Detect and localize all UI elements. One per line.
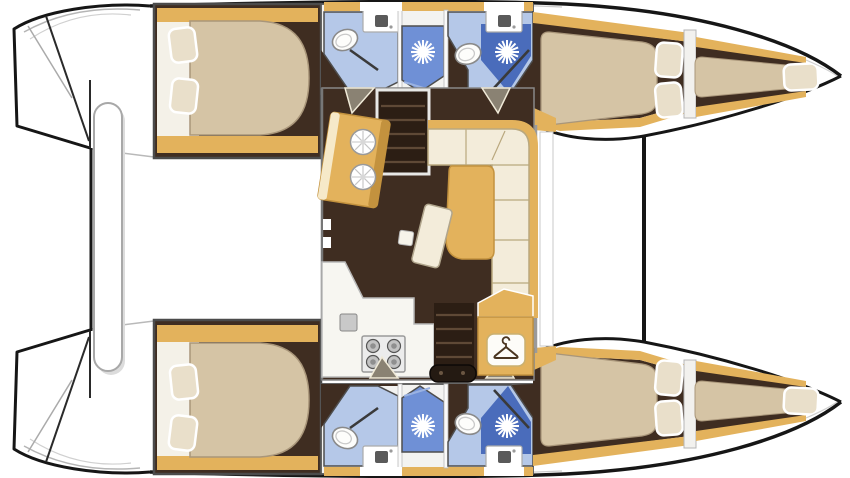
door-hinge [323, 237, 331, 248]
stove-burner [367, 340, 380, 353]
navigation-area [478, 289, 533, 375]
galley-sink [351, 130, 376, 155]
catamaran-floor-plan [0, 0, 850, 478]
dining-table [446, 166, 494, 259]
stool-top [398, 230, 414, 246]
floor-plan-page [0, 0, 850, 478]
starboard-companionway-stairs [430, 303, 476, 382]
galley-sink-square [340, 314, 357, 331]
step-detail [439, 371, 443, 375]
stool [398, 230, 414, 246]
galley-sink [351, 165, 376, 190]
door-hinge [323, 219, 331, 230]
hanging-locker-panel [487, 334, 525, 366]
step-detail [461, 371, 465, 375]
dinghy-platform [94, 103, 122, 371]
galley-sink-unit [317, 112, 390, 208]
saloon [317, 88, 538, 382]
stove-burner [388, 340, 401, 353]
entry-step [430, 365, 476, 382]
saloon-front-window [540, 132, 553, 346]
